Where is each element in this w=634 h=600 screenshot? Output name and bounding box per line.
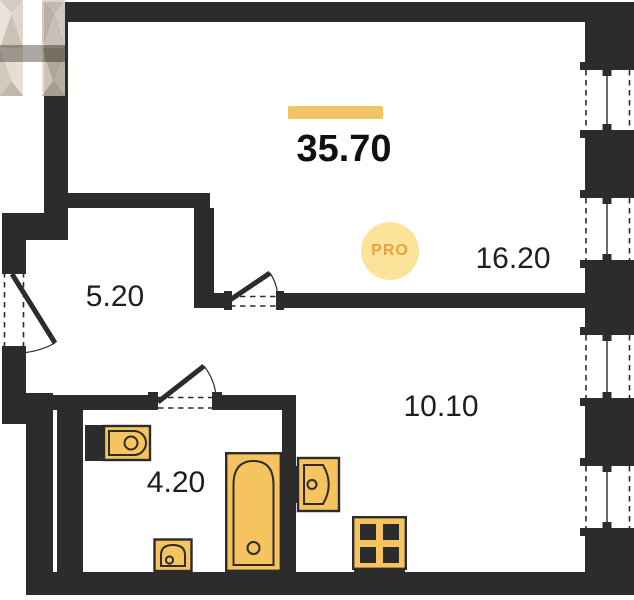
kitchen-sink <box>294 458 339 511</box>
wall-segment <box>57 408 83 572</box>
wall-segment <box>278 293 585 308</box>
wall-segment <box>2 240 26 274</box>
window-sill <box>580 528 634 536</box>
interior-door <box>230 273 278 306</box>
wall-segment <box>585 536 634 595</box>
wall-segment <box>26 393 53 595</box>
wall-segment <box>585 138 634 190</box>
window-sill <box>580 130 634 138</box>
wall-segment <box>2 213 68 240</box>
stove <box>353 517 406 573</box>
wall-segment <box>585 268 634 327</box>
wall-segment <box>44 2 634 22</box>
total-area-label: 35.70 <box>296 130 391 168</box>
total-area-accent-bar <box>288 106 383 119</box>
wall-segment <box>26 395 148 410</box>
window-sill <box>580 260 634 268</box>
window-header <box>580 327 634 335</box>
bathtub <box>226 453 281 571</box>
floor-plan-canvas: PRO 35.70 16.20 5.20 10.10 4.20 <box>0 0 634 600</box>
entrance-door <box>5 272 56 353</box>
window <box>586 198 630 260</box>
door-jamb <box>148 392 158 410</box>
wall-segment <box>282 395 296 572</box>
window <box>586 70 630 130</box>
window-sill <box>580 398 634 406</box>
wall-segment <box>585 406 634 458</box>
h-monogram-watermark <box>0 0 66 97</box>
window <box>586 466 630 528</box>
room-area-label-hallway: 5.20 <box>86 282 144 312</box>
window-header <box>580 62 634 70</box>
window-header <box>580 190 634 198</box>
room-area-label-bathroom: 4.20 <box>147 468 205 498</box>
wall-segment <box>26 572 634 595</box>
window-header <box>580 458 634 466</box>
bathroom-door <box>158 366 216 408</box>
washbasin <box>155 540 192 572</box>
pro-badge: PRO <box>361 222 419 280</box>
window <box>586 335 630 398</box>
pro-badge-label: PRO <box>371 242 409 260</box>
toilet <box>85 425 150 461</box>
room-area-label-kitchen: 10.10 <box>403 392 478 422</box>
room-area-label-room: 16.20 <box>475 244 550 274</box>
wall-segment <box>67 193 210 208</box>
watermark-crossbar <box>0 45 65 62</box>
wall-segment <box>585 18 634 62</box>
door-jamb <box>212 392 222 410</box>
wall-segment <box>194 208 214 308</box>
